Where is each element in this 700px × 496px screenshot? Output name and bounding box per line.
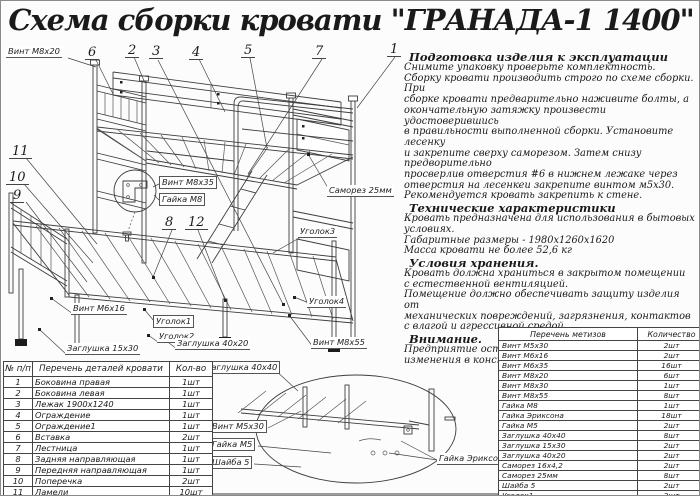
table-row: 10Поперечка2шт <box>4 476 213 487</box>
bracket-detail-circle <box>114 170 156 241</box>
cell-qty: 2шт <box>638 351 700 361</box>
section-text-storage: Кровать должна храниться в закрытом поме… <box>404 269 696 333</box>
table-row: Винт М8х301шт <box>499 381 700 391</box>
parts-table-body: 1Боковина правая1шт2Боковина левая1шт3Ле… <box>4 377 213 496</box>
cell-name: Поперечка <box>33 476 170 487</box>
label-ugolok1: Уголок1 <box>153 315 194 328</box>
cell-num: 2 <box>4 388 33 399</box>
cell-name: Задняя направляющая <box>33 454 170 465</box>
table-row: Саморез 25мм8шт <box>499 471 700 481</box>
label-zaglushka-15x30: Заглушка 15х30 <box>65 343 140 355</box>
table-row: Шайба 52шт <box>499 481 700 491</box>
label-samorez-25mm: Саморез 25мм <box>327 185 394 197</box>
cell-name: Передняя направляющая <box>33 465 170 476</box>
cell-name: Ограждение <box>33 410 170 421</box>
cell-name: Гайка М5 <box>499 421 638 431</box>
table-row: 4Ограждение1шт <box>4 410 213 421</box>
cell-name: Винт М5х30 <box>499 341 638 351</box>
cell-qty: 1шт <box>170 421 213 432</box>
table-row: Саморез 16х4,22шт <box>499 461 700 471</box>
label-vint-m5x30: Винт М5х30 <box>209 420 267 433</box>
table-row: Гайка М52шт <box>499 421 700 431</box>
col-name: Перечень деталей кровати <box>33 362 170 377</box>
label-zaglushka-40x40: Заглушка 40х40 <box>203 361 280 374</box>
cell-name: Гайка Эриксона <box>499 411 638 421</box>
cell-name: Ламели <box>33 487 170 496</box>
cell-qty: 2шт <box>638 451 700 461</box>
table-row: Гайка М81шт <box>499 401 700 411</box>
cell-name: Ограждение1 <box>33 421 170 432</box>
cell-qty: 1шт <box>170 399 213 410</box>
col-qty: Количество <box>638 328 700 341</box>
cell-qty: 2шт <box>638 341 700 351</box>
callout-3: 3 <box>149 45 163 59</box>
cell-qty: 2шт <box>638 491 700 496</box>
cell-num: 11 <box>4 487 33 496</box>
cell-name: Винт М6х16 <box>499 351 638 361</box>
callout-6: 6 <box>85 46 99 60</box>
table-row: 8Задняя направляющая1шт <box>4 454 213 465</box>
lower-bunk <box>9 193 353 354</box>
cell-name: Вставка <box>33 432 170 443</box>
col-num: № п/п <box>4 362 33 377</box>
cell-num: 10 <box>4 476 33 487</box>
table-row: 1Боковина правая1шт <box>4 377 213 388</box>
callout-4: 4 <box>189 46 203 60</box>
section-text-preparation: Снимите упаковку проверьте комплектность… <box>404 63 696 202</box>
table-row: Винт М8х206шт <box>499 371 700 381</box>
cell-qty: 8шт <box>638 471 700 481</box>
cell-qty: 1шт <box>638 401 700 411</box>
cell-qty: 8шт <box>638 391 700 401</box>
table-row: Винт М6х3516шт <box>499 361 700 371</box>
table-row: Винт М5х302шт <box>499 341 700 351</box>
label-gaika-m8: Гайка М8 <box>159 193 205 206</box>
cell-qty: 18шт <box>638 411 700 421</box>
callout-12: 12 <box>185 216 208 230</box>
table-row: Заглушка 15х302шт <box>499 441 700 451</box>
cell-name: Шайба 5 <box>499 481 638 491</box>
cell-qty: 1шт <box>170 454 213 465</box>
cell-name: Уголок1 <box>499 491 638 496</box>
section-text-specs: Кровать предназначена для использования … <box>404 214 696 257</box>
cell-num: 3 <box>4 399 33 410</box>
cell-name: Боковина правая <box>33 377 170 388</box>
parts-table-header: № п/п Перечень деталей кровати Кол-во <box>4 362 213 377</box>
col-qty: Кол-во <box>170 362 213 377</box>
label-ugolok4: Уголок4 <box>307 296 346 308</box>
label-shaiba-5: Шайба 5 <box>209 456 252 469</box>
cell-num: 7 <box>4 443 33 454</box>
cell-qty: 2шт <box>170 432 213 443</box>
callout-9: 9 <box>10 189 24 203</box>
cell-num: 8 <box>4 454 33 465</box>
callout-2: 2 <box>125 44 139 58</box>
label-zaglushka-40x20: Заглушка 40х20 <box>175 338 250 350</box>
callout-1: 1 <box>387 43 401 57</box>
parts-table: № п/п Перечень деталей кровати Кол-во 1Б… <box>3 361 213 496</box>
cell-qty: 1шт <box>170 443 213 454</box>
callout-11: 11 <box>9 145 32 159</box>
cell-qty: 2шт <box>638 421 700 431</box>
cell-qty: 10шт <box>170 487 213 496</box>
instructions-column: Подготовка изделия к эксплуатации Снимит… <box>404 51 696 367</box>
callout-10: 10 <box>6 171 29 185</box>
cell-qty: 2шт <box>170 476 213 487</box>
table-row: Винт М8х558шт <box>499 391 700 401</box>
cell-num: 6 <box>4 432 33 443</box>
table-row: 3Лежак 1900х12401шт <box>4 399 213 410</box>
table-row: Уголок12шт <box>499 491 700 496</box>
hardware-table-header: Перечень метизов Количество <box>499 328 700 341</box>
label-vint-m8x55: Винт М8х55 <box>311 337 367 349</box>
cell-num: 1 <box>4 377 33 388</box>
label-vint-m8x35: Винт М8х35 <box>159 176 217 189</box>
cell-qty: 1шт <box>638 381 700 391</box>
hardware-table: Перечень метизов Количество Винт М5х302ш… <box>498 327 700 496</box>
label-ugolok3: Уголок3 <box>298 226 337 238</box>
table-row: 11Ламели10шт <box>4 487 213 496</box>
cell-name: Боковина левая <box>33 388 170 399</box>
cell-name: Лестница <box>33 443 170 454</box>
cell-qty: 2шт <box>638 481 700 491</box>
col-name: Перечень метизов <box>499 328 638 341</box>
callout-7: 7 <box>312 45 326 59</box>
cell-name: Винт М6х35 <box>499 361 638 371</box>
cell-name: Саморез 16х4,2 <box>499 461 638 471</box>
cell-num: 5 <box>4 421 33 432</box>
cell-name: Винт М8х55 <box>499 391 638 401</box>
hardware-table-body: Винт М5х302штВинт М6х162штВинт М6х3516шт… <box>499 341 700 496</box>
cell-qty: 1шт <box>170 377 213 388</box>
cell-qty: 2шт <box>638 461 700 471</box>
label-gaika-m5: Гайка М5 <box>209 438 255 451</box>
cell-name: Винт М8х20 <box>499 371 638 381</box>
table-row: Гайка Эриксона18шт <box>499 411 700 421</box>
cell-qty: 1шт <box>170 388 213 399</box>
table-row: Заглушка 40х408шт <box>499 431 700 441</box>
label-vint-m8x20: Винт М8х20 <box>6 46 62 58</box>
cell-qty: 2шт <box>638 441 700 451</box>
cell-qty: 16шт <box>638 361 700 371</box>
cell-qty: 8шт <box>638 431 700 441</box>
callout-5: 5 <box>241 44 255 58</box>
table-row: 5Ограждение11шт <box>4 421 213 432</box>
cell-num: 9 <box>4 465 33 476</box>
cell-name: Гайка М8 <box>499 401 638 411</box>
cell-name: Заглушка 40х20 <box>499 451 638 461</box>
cell-name: Заглушка 40х40 <box>499 431 638 441</box>
callout-8: 8 <box>162 216 176 230</box>
table-row: 2Боковина левая1шт <box>4 388 213 399</box>
assembly-scheme-sheet: Схема сборки кровати "ГРАНАДА-1 1400" <box>0 0 700 496</box>
table-row: 6Вставка2шт <box>4 432 213 443</box>
cell-name: Лежак 1900х1240 <box>33 399 170 410</box>
table-row: 7Лестница1шт <box>4 443 213 454</box>
table-row: Заглушка 40х202шт <box>499 451 700 461</box>
cell-name: Винт М8х30 <box>499 381 638 391</box>
cell-num: 4 <box>4 410 33 421</box>
label-vint-m6x16: Винт М6х16 <box>71 303 127 315</box>
cell-qty: 1шт <box>170 465 213 476</box>
cell-qty: 1шт <box>170 410 213 421</box>
table-row: Винт М6х162шт <box>499 351 700 361</box>
cell-name: Саморез 25мм <box>499 471 638 481</box>
cell-qty: 6шт <box>638 371 700 381</box>
table-row: 9Передняя направляющая1шт <box>4 465 213 476</box>
cell-name: Заглушка 15х30 <box>499 441 638 451</box>
